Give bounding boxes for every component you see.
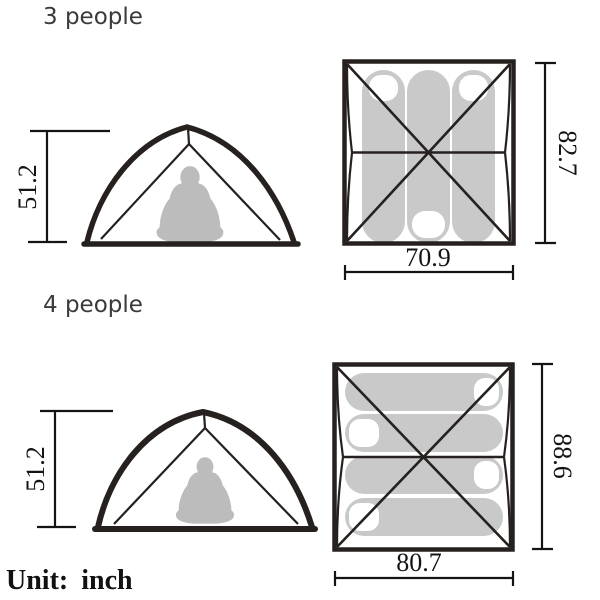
tent-size-diagram: 3 people 51.2 70.9 82.7 4 people 51.2 80… [0, 0, 600, 600]
tent-4p-side-view [95, 412, 315, 529]
dimension-label-4p-height: 51.2 [21, 446, 51, 492]
section-label-4-people: 4 people [43, 292, 143, 318]
tent-3p-side-view [84, 127, 298, 244]
dimension-label-4p-width: 80.7 [396, 548, 442, 578]
unit-prefix: Unit: [6, 565, 68, 596]
bag-hood [412, 211, 445, 238]
bag-hood [369, 75, 398, 101]
unit-label: Unit:inch [6, 565, 133, 597]
tent-4p-top-view [335, 365, 513, 550]
person-silhouette [157, 166, 224, 242]
dimension-label-3p-width: 70.9 [405, 243, 451, 273]
bag-hood [459, 75, 488, 101]
sleeping-bags-3p [362, 70, 495, 243]
person-silhouette [176, 457, 234, 523]
bag-hood [474, 461, 499, 489]
dimension-label-4p-depth: 88.6 [547, 433, 577, 479]
tent-3p-top-view [345, 62, 514, 244]
dimension-label-3p-depth: 82.7 [552, 130, 582, 176]
section-label-3-people: 3 people [43, 4, 143, 30]
dimension-label-3p-height: 51.2 [13, 164, 43, 210]
bag-hood [349, 419, 379, 447]
unit-value: inch [81, 565, 132, 596]
